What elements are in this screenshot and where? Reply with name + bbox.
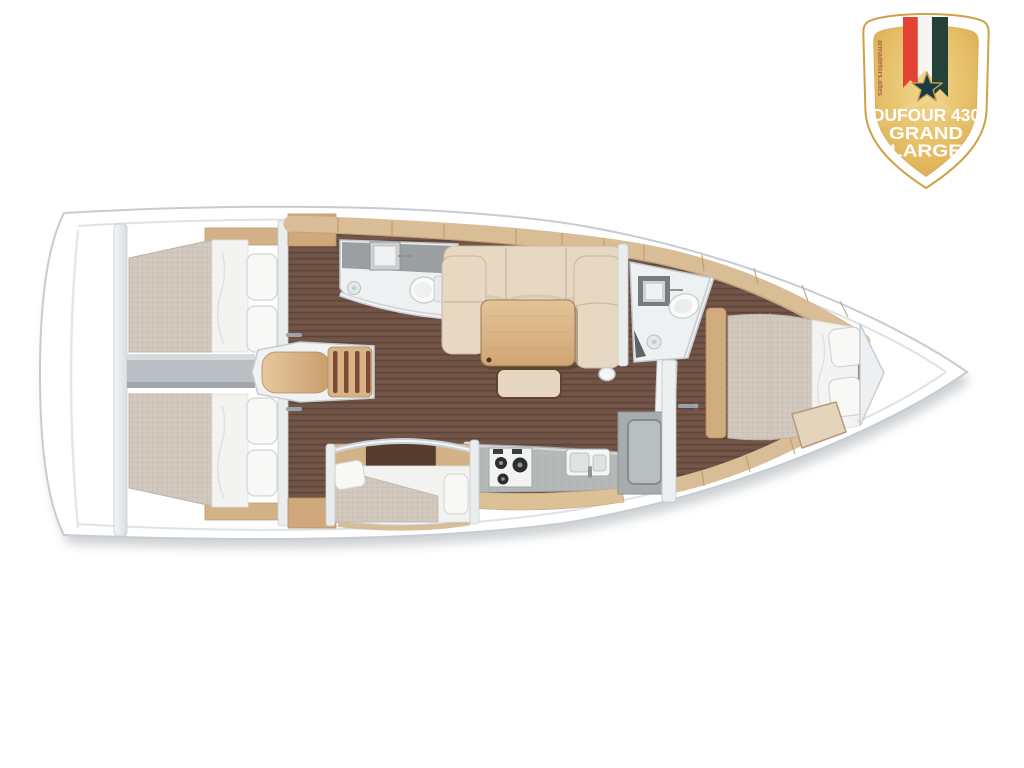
brand-badge: DUFOUR 430 GRAND LARGE armadefors.altes (863, 14, 988, 188)
pillow (247, 306, 277, 352)
sink-basin (570, 453, 589, 472)
washbasin-bowl (646, 284, 662, 299)
ribbon-stripe-red (903, 17, 918, 88)
sink-faucet (588, 466, 592, 478)
table-leg-mark (487, 358, 492, 363)
stair-slat (333, 351, 338, 393)
mast-post (599, 368, 615, 381)
stove-knob (493, 449, 503, 454)
double-bed-mattress (129, 240, 212, 352)
stern-bulkhead (114, 224, 127, 536)
pillow (332, 460, 366, 491)
pillow (247, 254, 277, 300)
page: DUFOUR 430 GRAND LARGE armadefors.altes (0, 0, 1024, 768)
stool (497, 369, 561, 398)
pillow (247, 450, 277, 496)
locker-void (366, 444, 436, 466)
bed-sheet (212, 240, 248, 352)
stair-slat (366, 351, 371, 393)
bed-foot-vanity (706, 308, 726, 438)
saloon-forward-wall (618, 244, 628, 366)
burner-cap (499, 461, 503, 465)
engine-box-bottom (127, 382, 255, 388)
pillow (828, 326, 864, 368)
bed-sheet (212, 394, 248, 507)
sofa-left-seat (442, 256, 486, 354)
door-knob (694, 404, 699, 409)
badge-title-line1: DUFOUR 430 (872, 105, 980, 125)
door-handle (286, 407, 302, 411)
badge-title-line3: LARGE (890, 141, 962, 161)
floorplan-illustration: DUFOUR 430 GRAND LARGE armadefors.altes (0, 0, 1024, 768)
dining-table (481, 300, 575, 366)
stair-slat (355, 351, 360, 393)
shower-drain-center (652, 340, 657, 345)
pillow (247, 398, 277, 444)
badge-watermark: armadefors.altes (876, 40, 883, 96)
cabin-bulkhead (278, 398, 288, 526)
washbasin-bowl (374, 246, 396, 266)
starboard-mid-cabin (326, 440, 479, 526)
door-handle (678, 404, 696, 408)
cabin-bulkhead (470, 440, 479, 524)
cabin-bulkhead (326, 444, 335, 526)
burner-cap (501, 477, 505, 481)
engine-box-top (127, 354, 255, 360)
fridge-door (628, 420, 661, 484)
stove-knob (512, 449, 522, 454)
stair-slat (344, 351, 349, 393)
ribbon-stripe-white (918, 17, 932, 78)
burner-cap (518, 463, 523, 468)
engine-compartment (127, 354, 255, 388)
door-handle (286, 333, 302, 337)
sofa-right-seat (574, 256, 622, 368)
toilet-seat (414, 282, 432, 298)
galley-forward-wall (662, 360, 676, 502)
double-bed-mattress (129, 394, 212, 506)
shower-drain-center (352, 286, 357, 291)
stairs-base-step (262, 352, 330, 393)
pillow (444, 474, 468, 514)
sink-basin-small (593, 455, 606, 471)
cabin-bulkhead (278, 220, 288, 350)
